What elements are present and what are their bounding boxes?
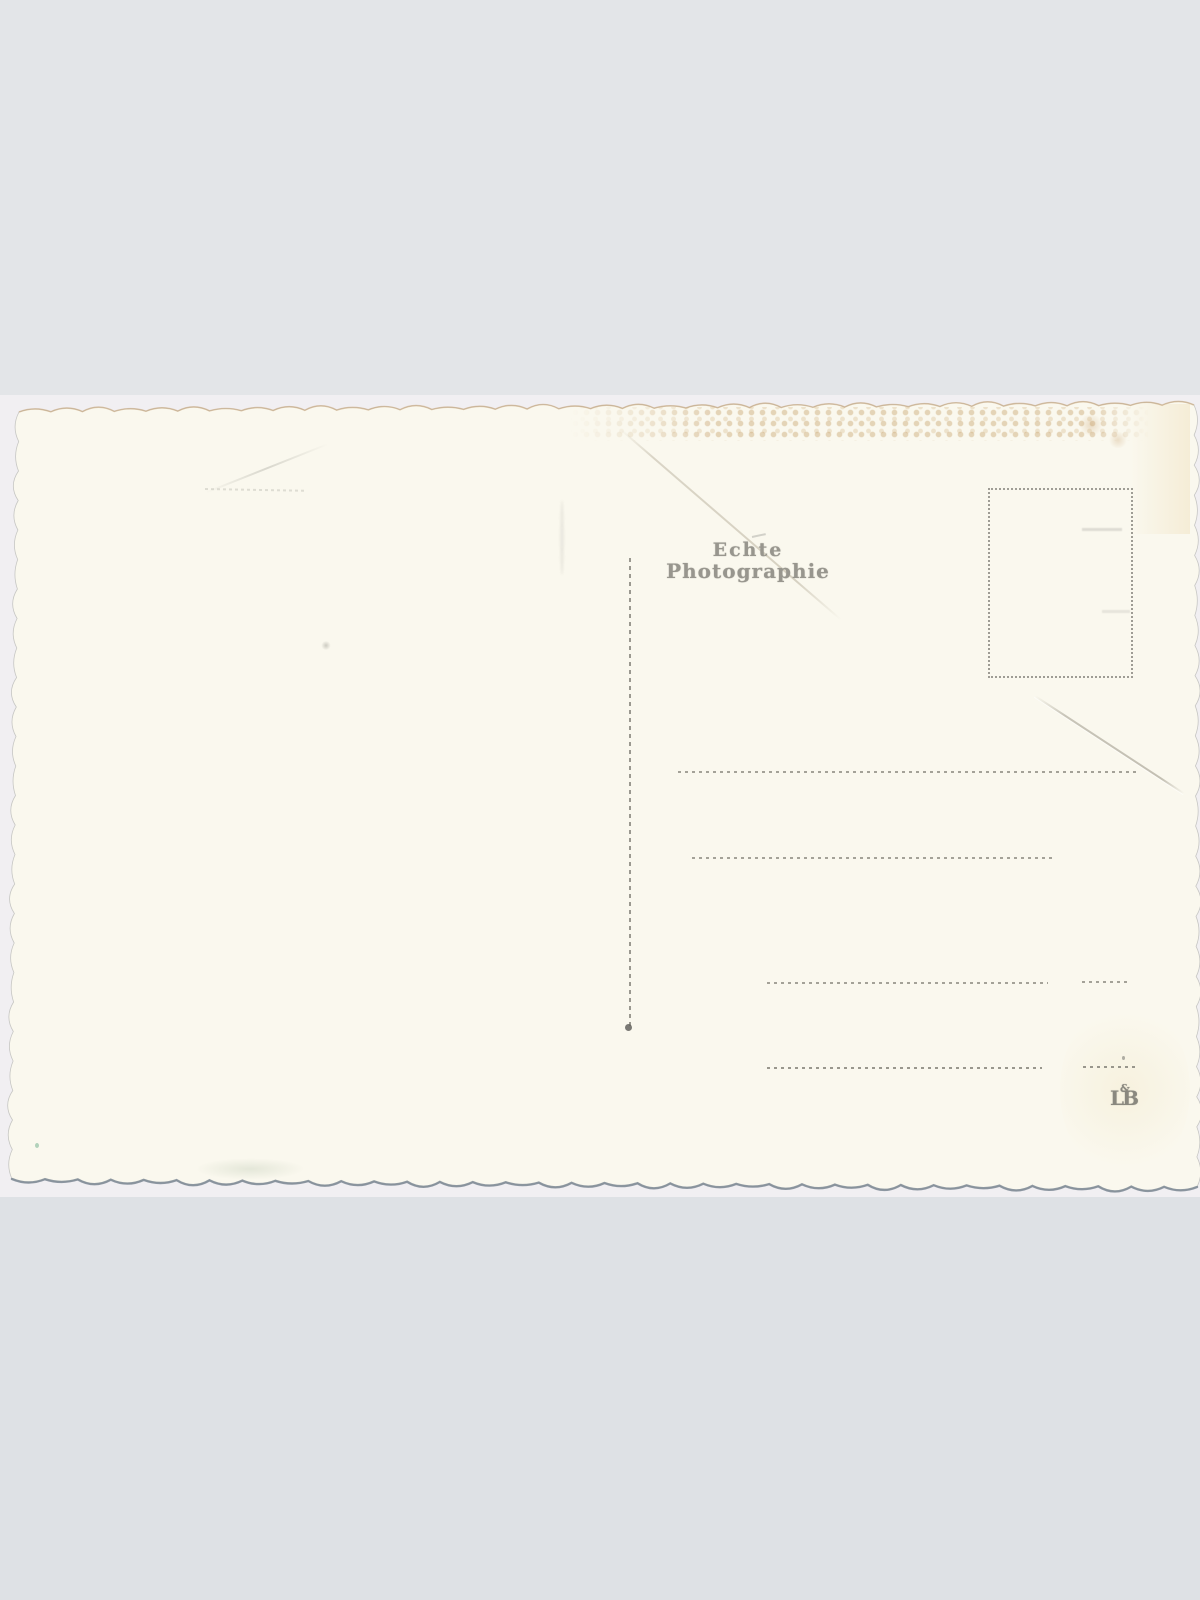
crease-line bbox=[1034, 695, 1184, 794]
scanned-postcard-photo: { "postcard": { "stamp": { "line1": "Ech… bbox=[0, 0, 1200, 1600]
faint-scuff-mark bbox=[205, 443, 328, 494]
divider-dotted-line bbox=[629, 558, 631, 1030]
right-edge-yellow-tint bbox=[1130, 404, 1190, 534]
divider-end-ink-dot bbox=[625, 1024, 632, 1031]
address-line-right-segment bbox=[1082, 981, 1127, 983]
foxing-spot bbox=[1108, 432, 1128, 448]
address-line bbox=[767, 982, 1048, 984]
stamp-text-line1: Echte bbox=[648, 540, 848, 560]
faint-smudge-line bbox=[205, 488, 305, 492]
foxing-spot bbox=[1078, 415, 1104, 435]
address-line bbox=[692, 857, 1052, 859]
monogram-ampersand: & bbox=[1120, 1082, 1130, 1095]
address-line bbox=[767, 1067, 1042, 1069]
ink-speck bbox=[1122, 1056, 1125, 1060]
gray-smudge-spot bbox=[321, 641, 331, 650]
pencil-tick bbox=[752, 533, 766, 538]
crease-line bbox=[619, 428, 841, 620]
top-edge-foxing-dots bbox=[570, 407, 1150, 441]
stamp-text-line2: Photographie bbox=[648, 560, 848, 582]
address-line-right-segment bbox=[1083, 1066, 1137, 1068]
publisher-monogram: LB & bbox=[1110, 1085, 1140, 1113]
pencil-mark bbox=[1082, 528, 1122, 531]
green-speck bbox=[35, 1143, 39, 1148]
address-line bbox=[678, 771, 1138, 773]
pencil-mark bbox=[1102, 610, 1130, 613]
bottom-left-green-tinge bbox=[195, 1158, 305, 1180]
stamp-placement-box bbox=[988, 488, 1133, 678]
echte-photographie-stamp: Echte Photographie bbox=[648, 540, 848, 582]
faint-vertical-streak bbox=[560, 500, 564, 575]
